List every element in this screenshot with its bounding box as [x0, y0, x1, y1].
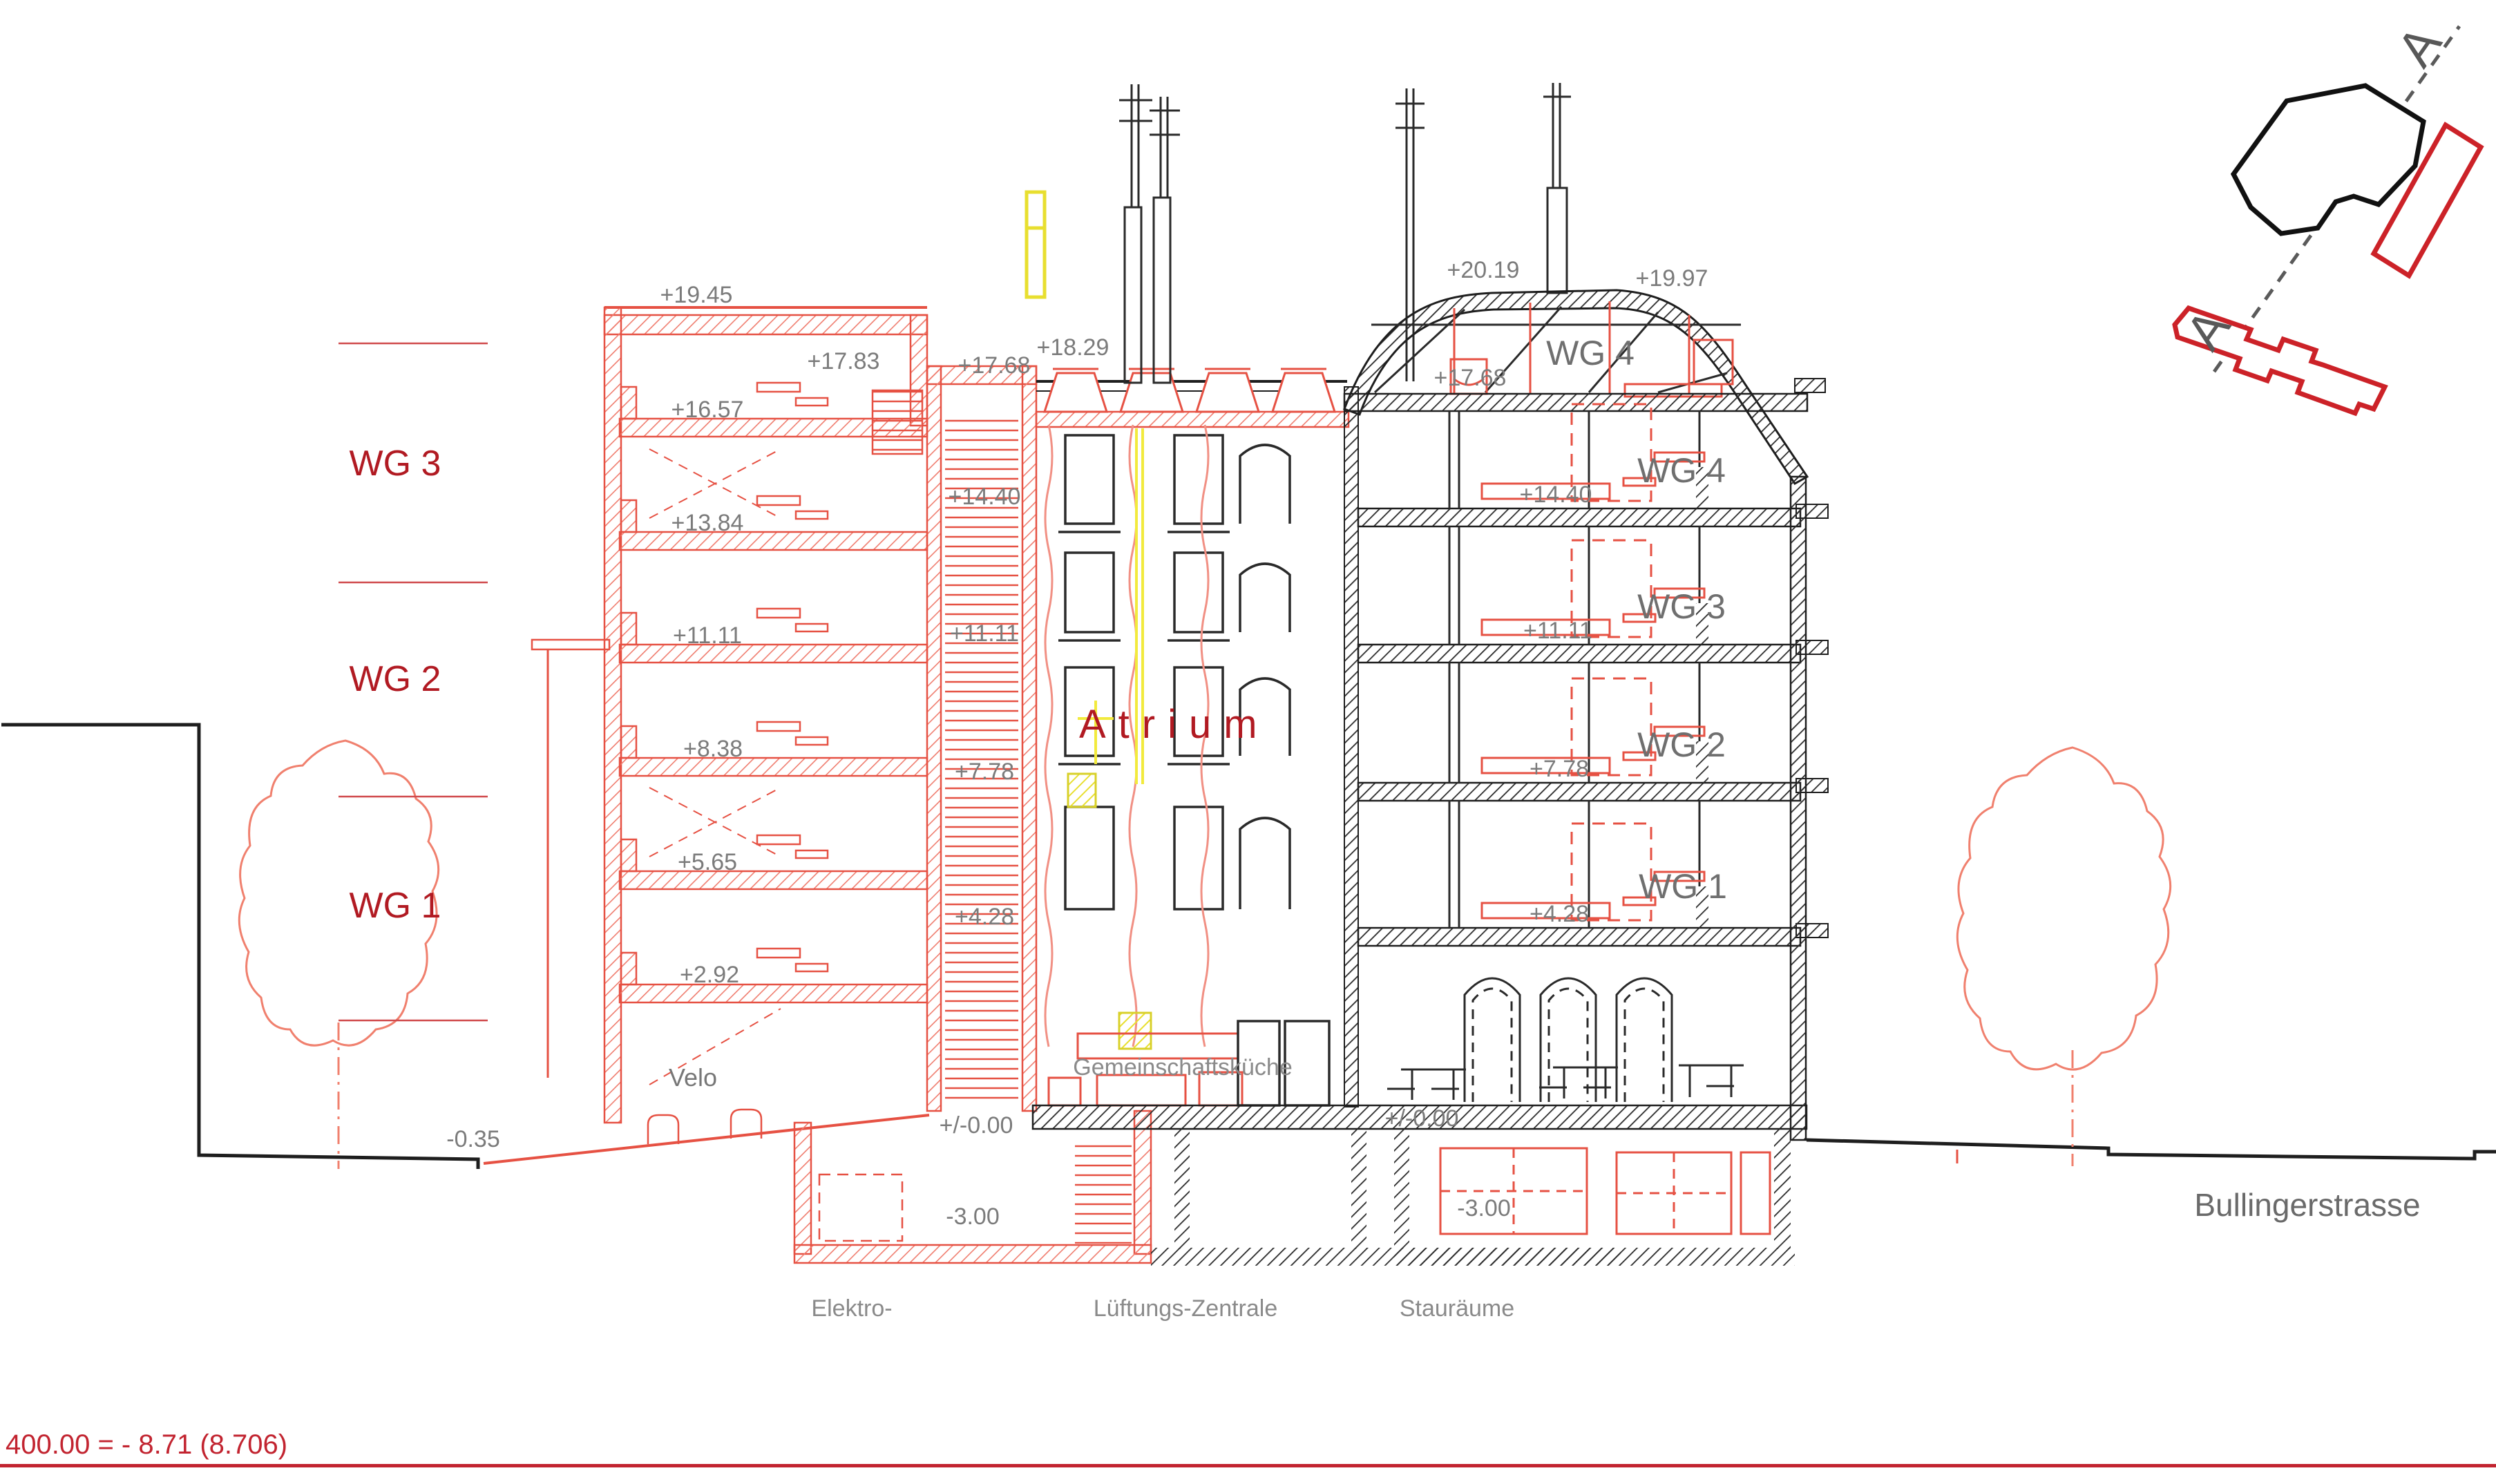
left-wall-stubs — [621, 387, 636, 984]
elevation-label: +11.11 — [673, 622, 742, 649]
party-wall — [1344, 387, 1358, 1107]
room-label-right: WG 1 — [1639, 867, 1727, 906]
chimneys — [1119, 83, 1571, 383]
stair-tower — [927, 366, 1036, 1111]
street-facade — [1791, 477, 1806, 1140]
elevation-label: +16.57 — [671, 397, 744, 423]
atrium-roof-slab — [1036, 412, 1349, 427]
elevation-label: +20.19 — [1447, 257, 1520, 283]
ground-arches — [1465, 978, 1672, 1102]
basement-room-label: Elektro- — [811, 1295, 892, 1322]
elevation-label: +4.28 — [955, 904, 1014, 930]
tower-east-wall — [1022, 366, 1036, 1111]
room-label-right: WG 3 — [1637, 587, 1726, 626]
room-label-right: WG 2 — [1637, 725, 1726, 764]
right-basement — [1394, 1129, 1795, 1266]
section-drawing: A A +19.45+16.57+13.84+11.11+8.38+5.65+2… — [0, 0, 2496, 1484]
elevation-label: +4.28 — [1530, 901, 1589, 927]
bike-stand — [648, 1115, 678, 1144]
ground-tables — [1387, 1065, 1744, 1100]
elevation-label: +18.29 — [1037, 334, 1109, 361]
yellow-vent — [1027, 192, 1045, 297]
elevation-label: -0.35 — [446, 1126, 500, 1152]
ground-lines — [1, 725, 2496, 1169]
basement-stair — [1075, 1140, 1132, 1244]
elevation-label: +17.68 — [958, 352, 1031, 379]
velo-label: Velo — [669, 1063, 717, 1092]
elevation-label: +14.40 — [949, 484, 1021, 510]
elevation-label: +19.97 — [1636, 265, 1708, 292]
elevation-label: +11.11 — [1523, 618, 1592, 644]
elevation-label: +/-0.00 — [1385, 1105, 1459, 1132]
unit-label-left: WG 3 — [350, 444, 441, 484]
ground-line-left — [1, 725, 478, 1169]
datum-note: 400.00 = - 8.71 (8.706) — [6, 1429, 287, 1460]
attic-floor-slab — [1344, 394, 1807, 411]
left-balcony-canopy — [532, 640, 609, 649]
right-floor-slabs — [1358, 508, 1800, 946]
roof — [1344, 290, 1807, 484]
elevation-label: +17.68 — [1434, 365, 1507, 391]
elevation-label: +/-0.00 — [940, 1112, 1013, 1139]
basement-room-label: Lüftungs-Zentrale — [1094, 1295, 1278, 1322]
left-unit-labels: WG 3WG 2WG 1 — [350, 444, 441, 926]
elevation-label: +19.45 — [660, 282, 733, 308]
elevation-label: +8.38 — [683, 736, 743, 762]
attic-stair — [873, 390, 922, 454]
elevation-label: +2.92 — [680, 962, 739, 988]
basement-dashed-box — [819, 1174, 902, 1241]
atrium-basement — [1151, 1129, 1621, 1266]
kitchen-label: Gemeinschaftsküche — [1073, 1054, 1293, 1081]
ground-line-street — [1807, 1140, 2496, 1159]
elevation-label: +7.78 — [955, 759, 1014, 785]
unit-label-left: WG 2 — [350, 659, 441, 699]
room-label-right: WG 4 — [1637, 451, 1726, 490]
atrium-windows — [1058, 435, 1290, 909]
elevation-label: +5.65 — [678, 849, 737, 875]
street-label: Bullingerstrasse — [2194, 1187, 2420, 1223]
unit-label-left: WG 1 — [350, 886, 441, 926]
tree-right — [1957, 748, 2170, 1069]
elevation-label: +17.83 — [808, 348, 880, 374]
left-west-wall — [604, 307, 621, 1123]
atrium-label: Atrium — [1079, 702, 1270, 747]
attic-room-label: WG 4 — [1546, 334, 1635, 372]
basement-room-label: Stauräume — [1400, 1295, 1514, 1322]
elevation-label: +13.84 — [671, 510, 744, 536]
ground-ramp-red — [484, 1115, 929, 1163]
datum-rule — [0, 1464, 2496, 1467]
section-marker-a-top: A — [2385, 15, 2452, 77]
bottom-room-labels: Elektro-Lüftungs-ZentraleStauräume — [811, 1295, 1514, 1322]
tower-west-wall — [927, 366, 941, 1111]
elevation-label: +7.78 — [1530, 756, 1589, 782]
elevation-label: +14.40 — [1520, 482, 1592, 508]
elevation-label: +11.11 — [950, 620, 1019, 647]
left-floor-slabs — [620, 419, 927, 1002]
left-roof-slab — [604, 315, 927, 334]
key-plan: A A — [2174, 15, 2481, 413]
elevation-label: -3.00 — [946, 1204, 1000, 1230]
elevation-label: -3.00 — [1457, 1195, 1511, 1221]
